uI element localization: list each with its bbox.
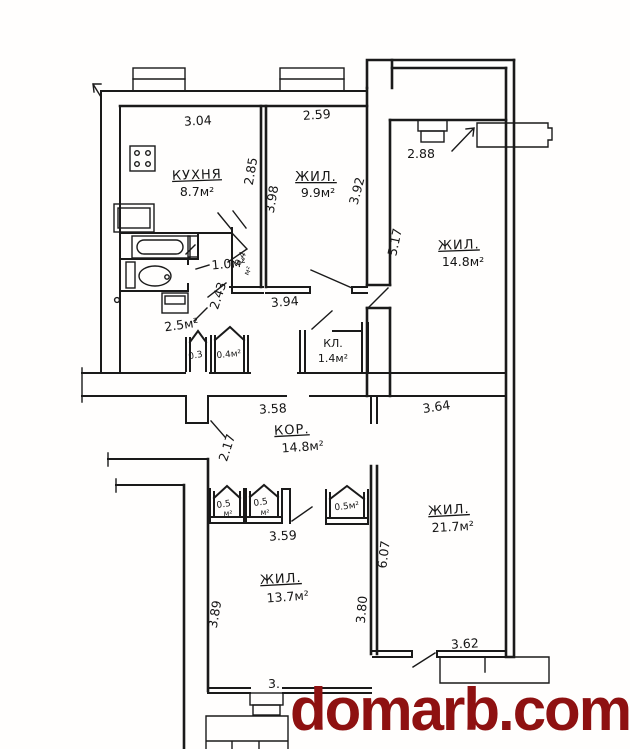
balcony-door-arrow <box>452 128 474 151</box>
corridor-label: КОР. <box>274 422 310 439</box>
stove-icon <box>130 146 155 171</box>
door-leaf-14-8 <box>369 288 388 307</box>
dim-living-top-right: 3.92 <box>346 175 368 206</box>
dim-hall-depth: 2.43 <box>206 280 229 311</box>
store-04-mid-area: 0.4 <box>233 250 249 268</box>
door-leaf-13-7 <box>292 507 312 521</box>
living-br-area: 21.7м² <box>431 518 474 535</box>
living-top-label: ЖИЛ. <box>295 170 337 185</box>
wc-leader-line <box>196 265 209 269</box>
bath-area: 2.5м² <box>163 315 199 335</box>
dim-living-top-width: 2.59 <box>302 106 331 123</box>
door-leaf-21-7-balcony <box>413 653 435 667</box>
store-04-row-area: 0.4м² <box>216 349 242 361</box>
dim-living-br-side: 6.07 <box>374 540 392 569</box>
dim-living-right-side: 5.17 <box>384 227 404 257</box>
pantry-label: КЛ. <box>323 337 343 350</box>
dim-kitchen-width: 3.04 <box>183 112 212 128</box>
dim-kitchen-depth: 2.85 <box>241 156 261 186</box>
dim-living-br-bottom: 3.62 <box>450 635 479 651</box>
living-top-area: 9.9м² <box>301 185 335 200</box>
builtin-05c-area: 0.5м² <box>334 501 360 514</box>
site-watermark: domarb.com <box>290 680 630 740</box>
door-leaf-9-9 <box>311 270 352 288</box>
dim-entry-width: 2.17 <box>215 432 238 463</box>
dim-closet-row: 3.59 <box>268 527 297 543</box>
dim-living-right-top: 2.88 <box>407 146 435 161</box>
labels: 3.04 КУХНЯ 8.7м² 2.85 2.59 ЖИЛ. 9.9м² 3.… <box>163 106 484 691</box>
top-left-hook <box>93 84 101 97</box>
dim-living-bl-bottom: 3. <box>268 676 280 691</box>
floor-plan-svg: 3.04 КУХНЯ 8.7м² 2.85 2.59 ЖИЛ. 9.9м² 3.… <box>0 0 630 749</box>
dim-living-br-left: 3.80 <box>353 595 370 624</box>
balcony-bottom-left <box>206 716 288 749</box>
floor-plan-page: 3.04 КУХНЯ 8.7м² 2.85 2.59 ЖИЛ. 9.9м² 3.… <box>0 0 630 749</box>
appliance-icon <box>162 293 188 313</box>
svg-text:м²: м² <box>261 508 270 517</box>
living-right-label: ЖИЛ. <box>438 237 480 253</box>
door-knob-icon <box>115 298 120 303</box>
kitchen-label: КУХНЯ <box>172 167 222 184</box>
living-right-area: 14.8м² <box>442 254 484 269</box>
toilet-icon <box>126 262 171 288</box>
door-leaf-pantry <box>312 311 332 329</box>
store-03-area: 0.3 <box>188 350 204 362</box>
svg-text:м²: м² <box>224 509 233 518</box>
pantry-area: 1.4м² <box>318 352 348 365</box>
edge-ticks <box>82 368 116 492</box>
dim-corridor-right: 3.64 <box>422 397 452 416</box>
living-br-label: ЖИЛ. <box>428 502 470 519</box>
window-13-7 <box>250 693 283 705</box>
bathtub-icon <box>132 236 198 258</box>
kitchen-area: 8.7м² <box>180 184 214 199</box>
living-bl-area: 13.7м² <box>266 588 309 606</box>
window-room-14-8 <box>418 120 447 131</box>
living-bl-label: ЖИЛ. <box>260 571 302 588</box>
corridor-area: 14.8м² <box>281 438 324 456</box>
dim-corridor-left: 3.58 <box>258 400 287 416</box>
dim-hall-width: 3.94 <box>270 293 299 310</box>
